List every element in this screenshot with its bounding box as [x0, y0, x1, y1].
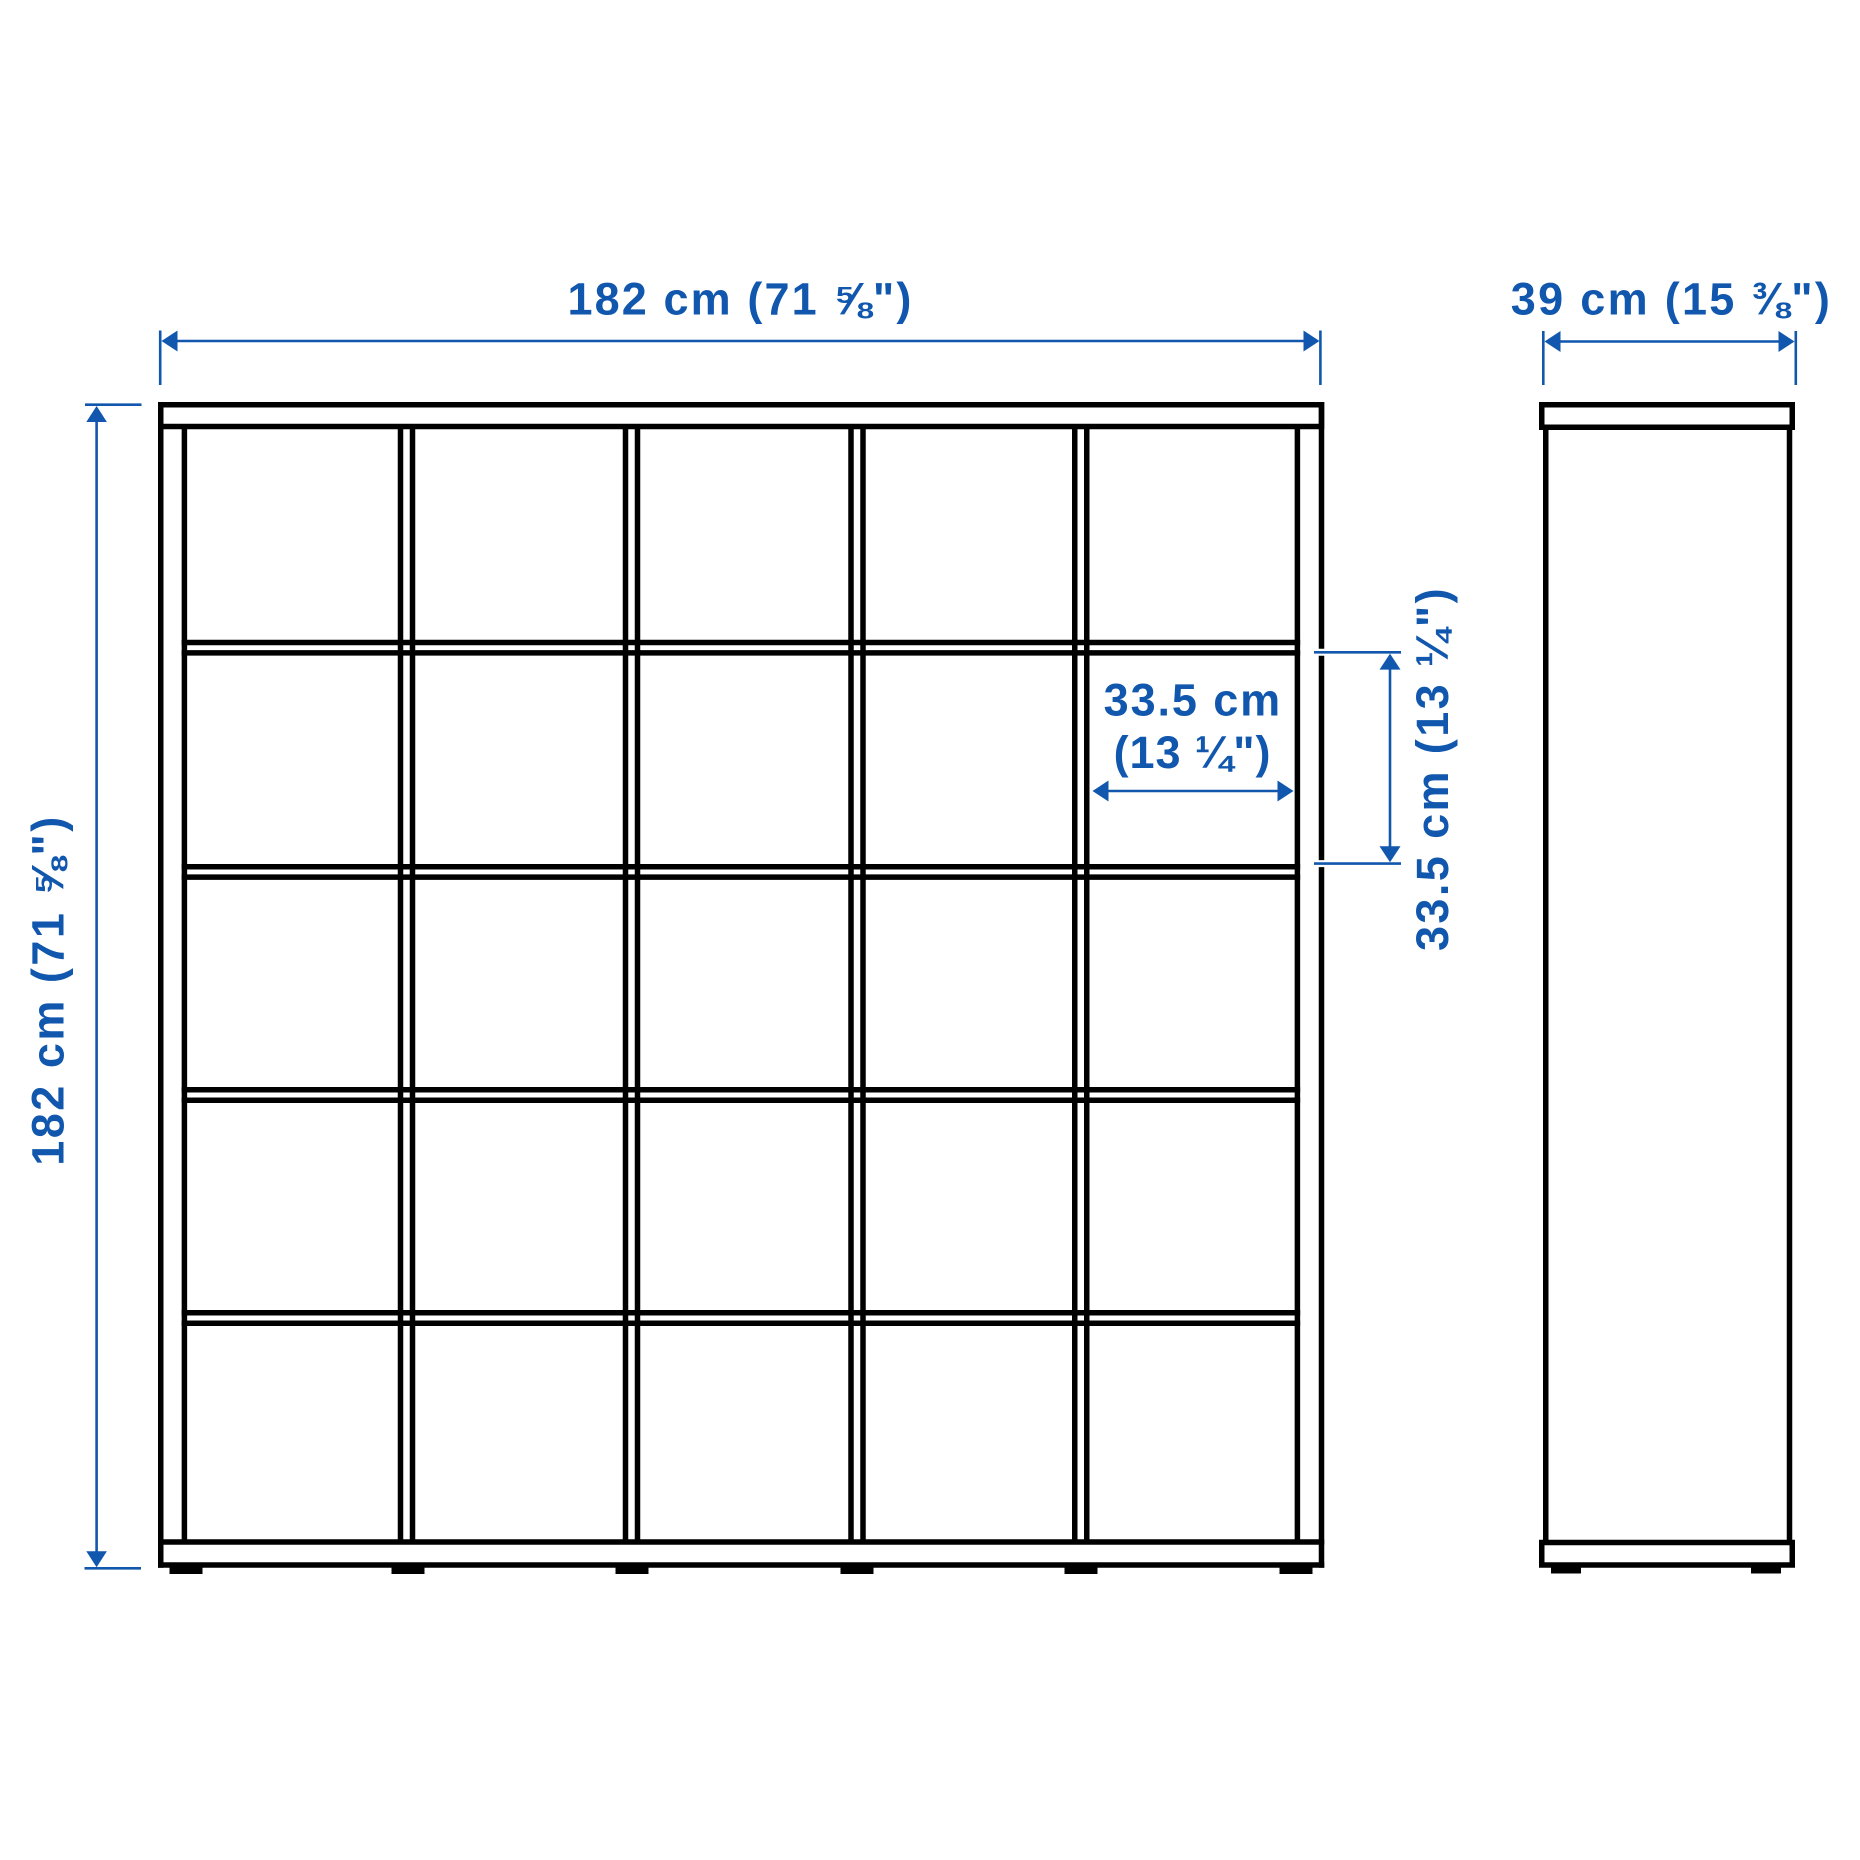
svg-text:39 cm (15 ⅜"): 39 cm (15 ⅜"): [1511, 274, 1832, 325]
svg-text:33.5 cm: 33.5 cm: [1104, 675, 1282, 726]
svg-text:182 cm (71 ⅝"): 182 cm (71 ⅝"): [568, 274, 914, 325]
svg-text:(13 ¼"): (13 ¼"): [1114, 727, 1272, 778]
svg-text:182 cm (71 ⅝"): 182 cm (71 ⅝"): [23, 814, 74, 1166]
svg-text:33.5 cm (13 ¼"): 33.5 cm (13 ¼"): [1407, 586, 1458, 951]
